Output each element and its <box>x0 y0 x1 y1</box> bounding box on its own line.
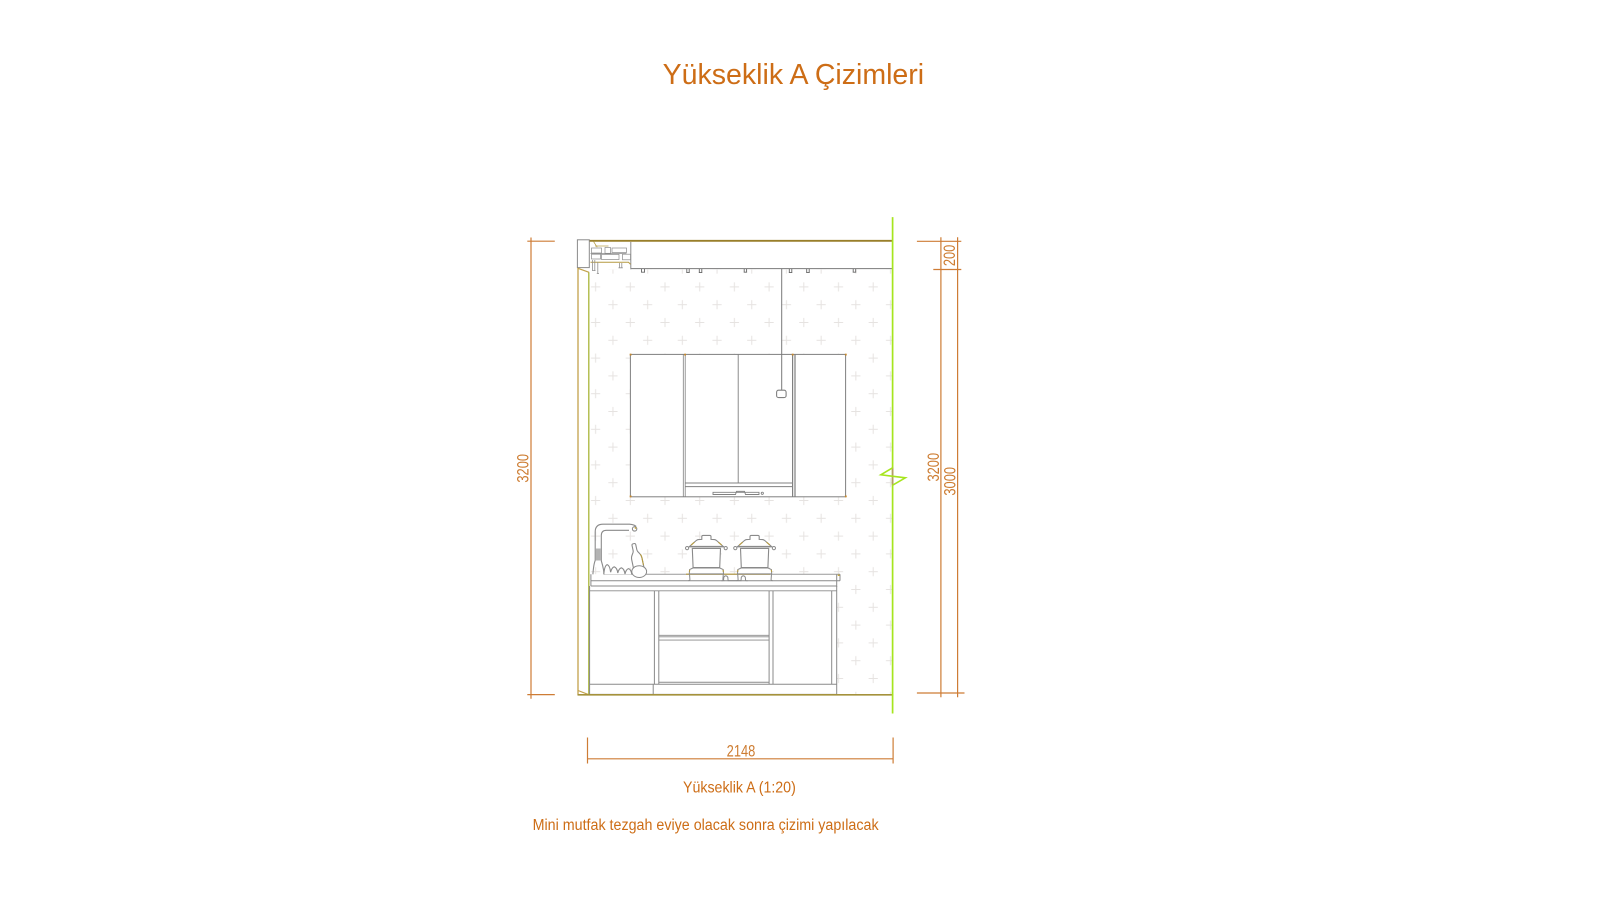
svg-text:Yükseklik A Çizimleri: Yükseklik A Çizimleri <box>663 59 925 91</box>
svg-text:Mini mutfak tezgah eviye olaca: Mini mutfak tezgah eviye olacak sonra çi… <box>533 817 879 834</box>
svg-text:2148: 2148 <box>727 743 756 761</box>
svg-text:3200: 3200 <box>515 454 533 483</box>
svg-text:Yükseklik A (1:20): Yükseklik A (1:20) <box>683 779 796 796</box>
svg-text:3000: 3000 <box>942 467 960 496</box>
svg-text:200: 200 <box>941 245 959 267</box>
svg-text:3200: 3200 <box>925 453 943 482</box>
